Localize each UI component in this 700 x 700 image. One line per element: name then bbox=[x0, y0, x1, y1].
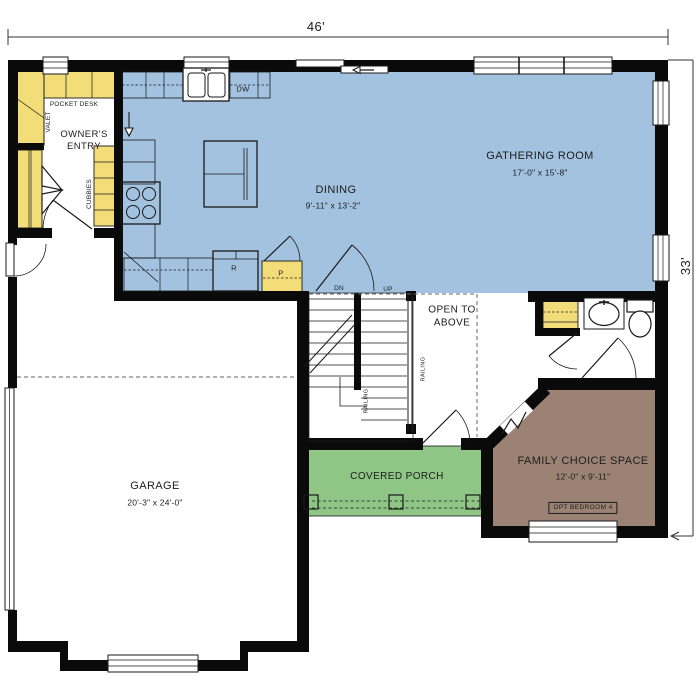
floor-plan: GATHERING ROOM 17'-0" x 15'-8" DINING 9'… bbox=[0, 0, 700, 700]
gathering-room-dims: 17'-0" x 15'-8" bbox=[512, 168, 567, 179]
bath-closet-door bbox=[549, 333, 577, 369]
garage-dims: 20'-3" x 24'-0" bbox=[127, 498, 182, 509]
opt-bedroom-label: OPT BEDROOM 4 bbox=[548, 502, 617, 514]
garage-side-door bbox=[6, 243, 46, 276]
toilet-tank bbox=[627, 300, 653, 312]
garage-label: GARAGE bbox=[130, 480, 179, 494]
dining-label: DINING bbox=[316, 184, 357, 198]
right-window-1 bbox=[653, 81, 669, 125]
cubbies-cabinet bbox=[94, 146, 116, 226]
toilet-bowl bbox=[629, 311, 651, 337]
open-to-above-label: OPEN TO ABOVE bbox=[421, 305, 483, 330]
owners-entry-label: OWNER'S ENTRY bbox=[55, 129, 113, 153]
width-dimension: 46' bbox=[304, 19, 328, 35]
pantry-label: P bbox=[278, 268, 283, 277]
valet-divider-wall bbox=[16, 143, 44, 150]
stair-treads-down bbox=[309, 299, 354, 387]
dim-line-width bbox=[8, 29, 668, 45]
cubbies-label: CUBBIES bbox=[86, 179, 94, 209]
valet-double-doors bbox=[42, 166, 62, 214]
right-window-2 bbox=[653, 235, 669, 281]
dining-dims: 9'-11" x 13'-2" bbox=[306, 201, 361, 212]
pocket-desk-label: POCKET DESK bbox=[50, 101, 98, 109]
dim-line-height bbox=[668, 60, 693, 536]
railing-label-1: RAILING bbox=[364, 389, 371, 414]
valet-cabinet bbox=[16, 68, 44, 145]
refrigerator-label: R bbox=[231, 263, 237, 272]
railing-label-2: RAILING bbox=[421, 357, 428, 382]
family-space-dims: 12'-0" x 9'-11" bbox=[556, 472, 611, 483]
family-space-label: FAMILY CHOICE SPACE bbox=[517, 455, 648, 469]
floor-plan-drawing bbox=[0, 0, 700, 700]
bath-linen-cabinet bbox=[543, 298, 578, 331]
stairs-up-label: UP bbox=[383, 286, 392, 294]
bathroom-door bbox=[582, 338, 636, 378]
stairs-down-label: DN bbox=[334, 285, 344, 293]
gathering-room-label: GATHERING ROOM bbox=[486, 150, 593, 164]
gathering-triple-window bbox=[474, 57, 612, 74]
height-dimension: 33' bbox=[678, 254, 694, 278]
garage-front-window bbox=[108, 655, 198, 672]
stair-break-line bbox=[304, 315, 358, 373]
sink-bowl bbox=[589, 303, 619, 326]
entry-window bbox=[43, 57, 68, 74]
family-window bbox=[529, 521, 617, 542]
dishwasher-label: DW bbox=[236, 84, 249, 93]
valet-label: VALET bbox=[45, 111, 53, 132]
covered-porch-label: COVERED PORCH bbox=[350, 471, 444, 484]
bathroom bbox=[584, 298, 653, 337]
stair-railing-lines bbox=[408, 293, 412, 432]
